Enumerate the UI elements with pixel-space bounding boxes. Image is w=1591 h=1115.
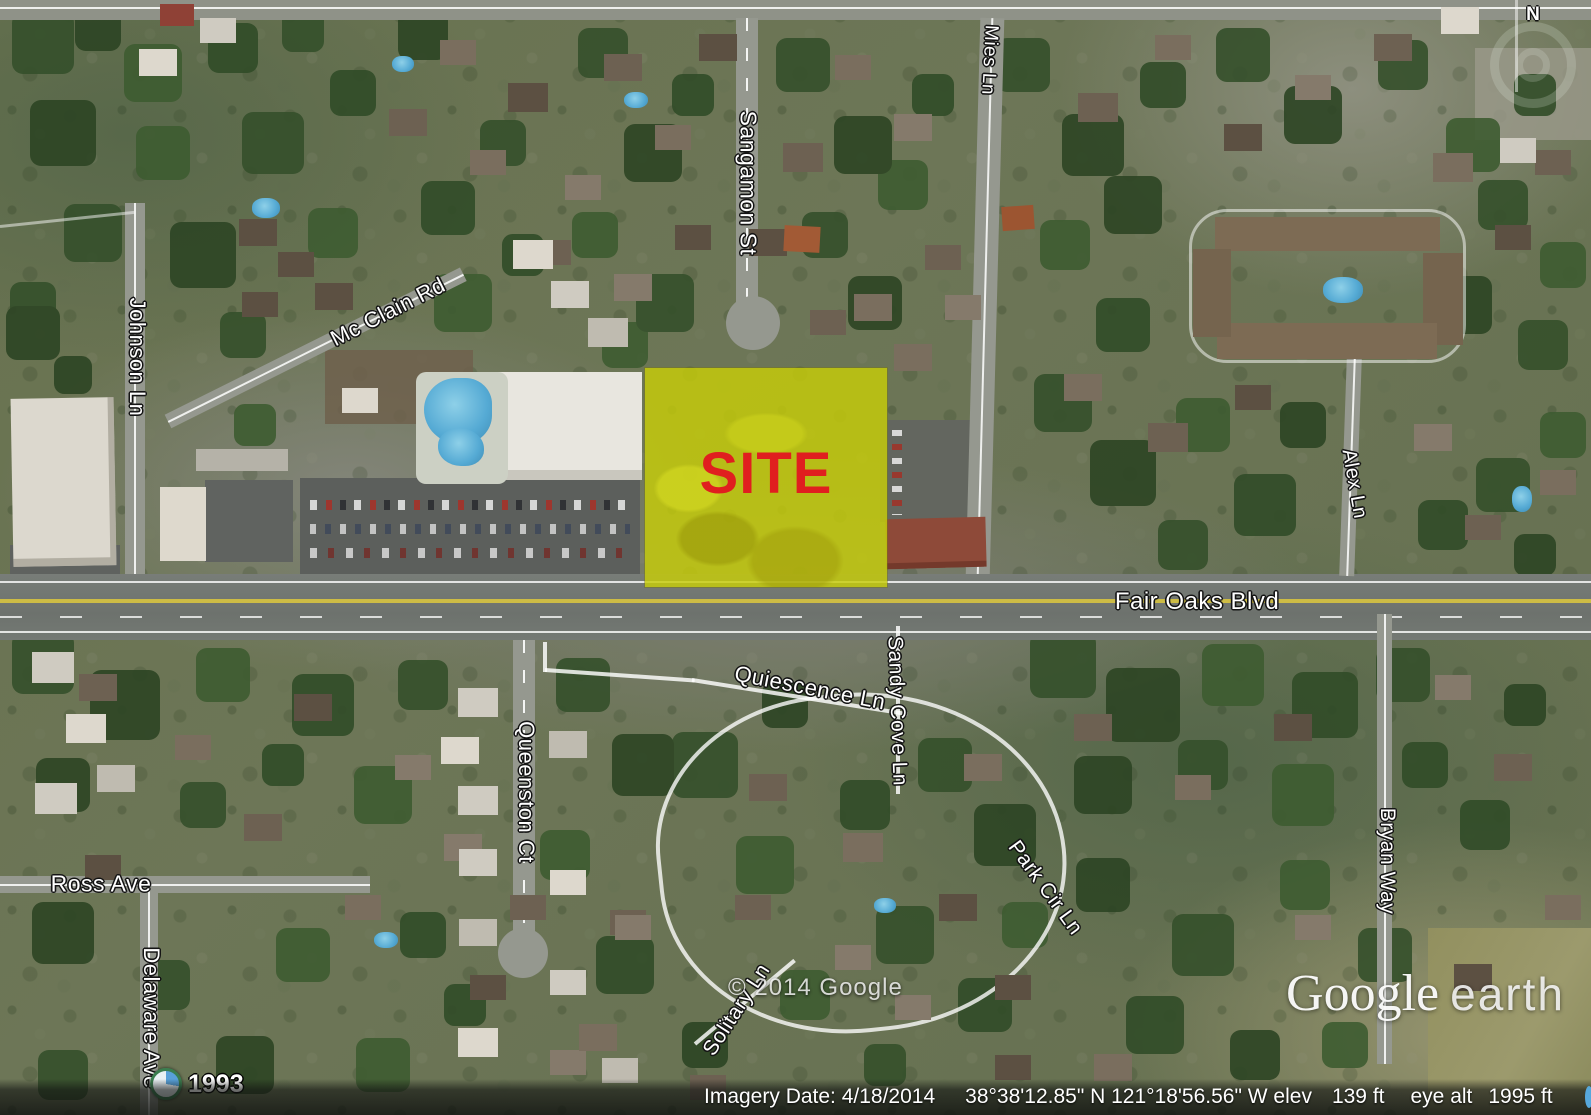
commercial-building (160, 487, 206, 561)
status-bar: Imagery Date: 4/18/2014 38°38'12.85" N 1… (0, 1079, 1591, 1115)
road-queenston-culdesac (498, 928, 548, 978)
condo-building (1193, 249, 1231, 337)
compass-inner-ring (1516, 48, 1550, 82)
lane-line (0, 616, 1591, 618)
condo-complex (1185, 205, 1470, 367)
street-label-ross-ave: Ross Ave (51, 871, 152, 898)
street-label-mies-ln: Mies Ln (976, 24, 1002, 95)
street-label-johnson-ln: Johnson Ln (124, 298, 150, 417)
road-top (0, 0, 1591, 20)
swimming-pool (1323, 277, 1363, 303)
compass[interactable]: N (1489, 4, 1577, 104)
tile-roof-house (783, 225, 820, 253)
swimming-pool (392, 56, 414, 72)
logo-earth-text: earth (1450, 967, 1565, 1021)
commercial-building (196, 449, 288, 471)
road-sangamon-culdesac (726, 296, 780, 350)
swimming-pool (874, 898, 896, 913)
parking-row (310, 500, 630, 510)
condo-building (1217, 323, 1437, 359)
lane-line (0, 631, 1591, 633)
parking-lot (205, 480, 293, 562)
street-label-bryan-way: Bryan Way (1375, 808, 1399, 914)
swimming-pool (374, 932, 398, 948)
parking-row (310, 524, 630, 534)
street-label-queenston-ct: Queenston Ct (513, 721, 539, 863)
logo-google-text: Google (1286, 964, 1439, 1023)
tile-roof-house (1001, 205, 1035, 231)
center-line-yellow (0, 599, 1591, 603)
condo-building (1215, 217, 1440, 251)
street-label-fair-oaks-blvd: Fair Oaks Blvd (1115, 588, 1279, 616)
street-label-sangamon-st: Sangamon St (735, 111, 762, 256)
swimming-pool (252, 198, 280, 218)
swimming-pool (438, 428, 484, 466)
red-roof-building (885, 517, 986, 570)
site-label: SITE (645, 440, 887, 507)
light-roofs-stamp (0, 0, 16, 5)
satellite-map-canvas[interactable]: SITE Sangamon St Mies Ln Mc Clain Rd Joh… (0, 0, 1591, 1115)
status-target-icon (1585, 1086, 1591, 1108)
parking-row (310, 548, 630, 558)
imagery-date: Imagery Date: 4/18/2014 (704, 1085, 935, 1109)
swimming-pool (624, 92, 648, 108)
tile-roof-house (160, 4, 194, 26)
google-earth-logo: Google earth (1286, 964, 1565, 1023)
copyright-watermark: © 2014 Google (728, 974, 903, 1002)
site-overlay: SITE (645, 368, 887, 587)
parking-row (892, 430, 902, 515)
status-row: Imagery Date: 4/18/2014 38°38'12.85" N 1… (0, 1079, 1591, 1115)
eye-altitude: 1995 ft (1488, 1085, 1552, 1109)
commercial-building (11, 397, 117, 567)
eye-alt-label: eye alt (1411, 1085, 1473, 1109)
coordinates: 38°38'12.85" N 121°18'56.56" W elev (965, 1085, 1312, 1109)
swimming-pool (1512, 486, 1532, 512)
elevation: 139 ft (1332, 1085, 1385, 1109)
